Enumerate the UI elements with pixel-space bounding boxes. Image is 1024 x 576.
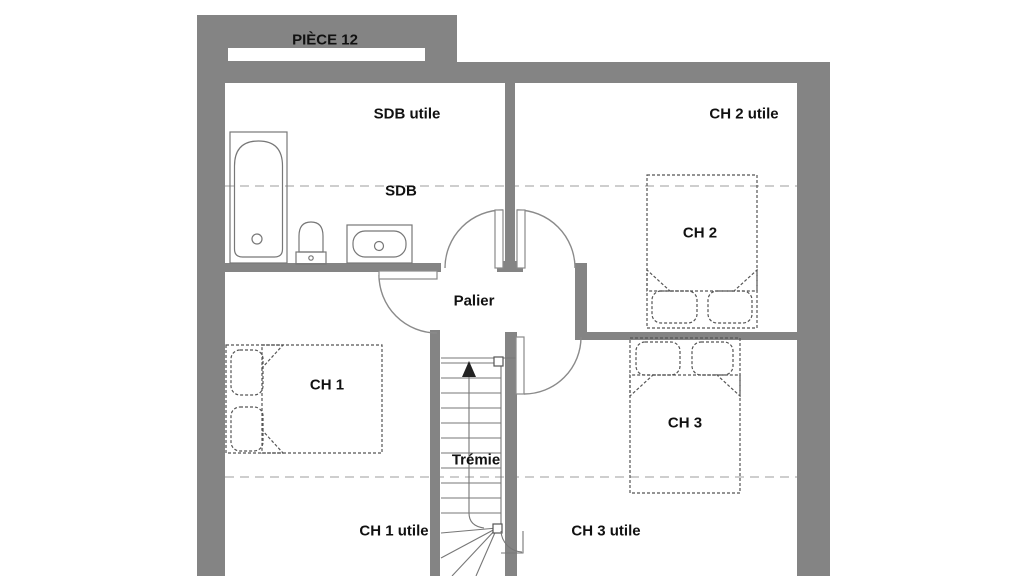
label-piece-12: PIÈCE 12 xyxy=(292,32,358,49)
bathtub-icon xyxy=(230,132,287,263)
label-ch3: CH 3 xyxy=(668,415,702,432)
label-sdb-utile: SDB utile xyxy=(374,106,441,123)
bed-ch1 xyxy=(226,345,382,453)
door-ch2 xyxy=(517,210,575,268)
floor-plan-drawing xyxy=(0,0,1024,576)
label-sdb: SDB xyxy=(385,183,417,200)
door-ch3 xyxy=(516,337,581,394)
floor-plan-canvas: PIÈCE 12 SDB utile CH 2 utile SDB CH 2 P… xyxy=(0,0,1024,576)
label-ch1: CH 1 xyxy=(310,377,344,394)
toilet-icon xyxy=(296,222,326,264)
label-ch2-utile: CH 2 utile xyxy=(709,106,778,123)
door-ch1 xyxy=(379,271,437,333)
label-palier: Palier xyxy=(454,293,495,310)
label-ch2: CH 2 xyxy=(683,225,717,242)
label-tremie: Trémie xyxy=(452,452,500,469)
door-sdb xyxy=(445,210,503,268)
bed-ch2 xyxy=(647,175,757,328)
label-ch3-utile: CH 3 utile xyxy=(571,523,640,540)
label-ch1-utile: CH 1 utile xyxy=(359,523,428,540)
washbasin-icon xyxy=(347,225,412,263)
